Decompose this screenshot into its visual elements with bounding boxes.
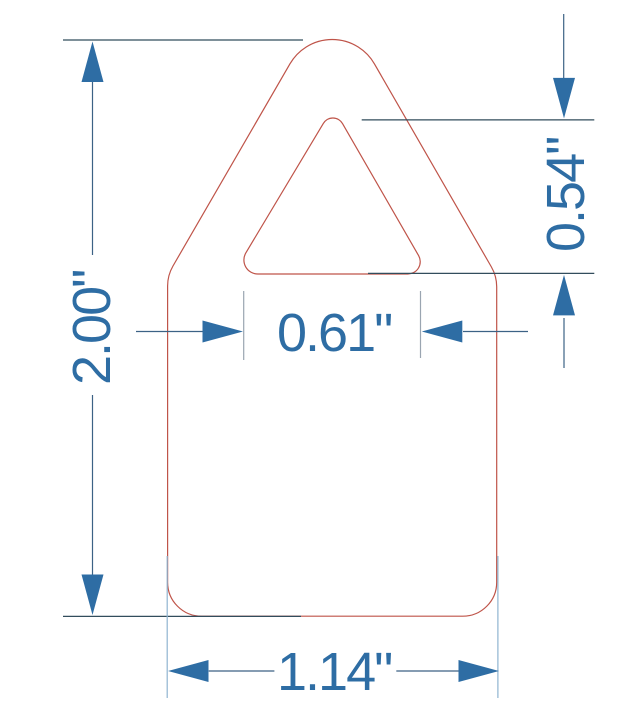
svg-text:1.14": 1.14": [277, 642, 391, 702]
svg-text:2.00": 2.00": [62, 271, 122, 385]
svg-text:0.61": 0.61": [277, 303, 391, 363]
svg-text:0.54": 0.54": [536, 138, 596, 252]
